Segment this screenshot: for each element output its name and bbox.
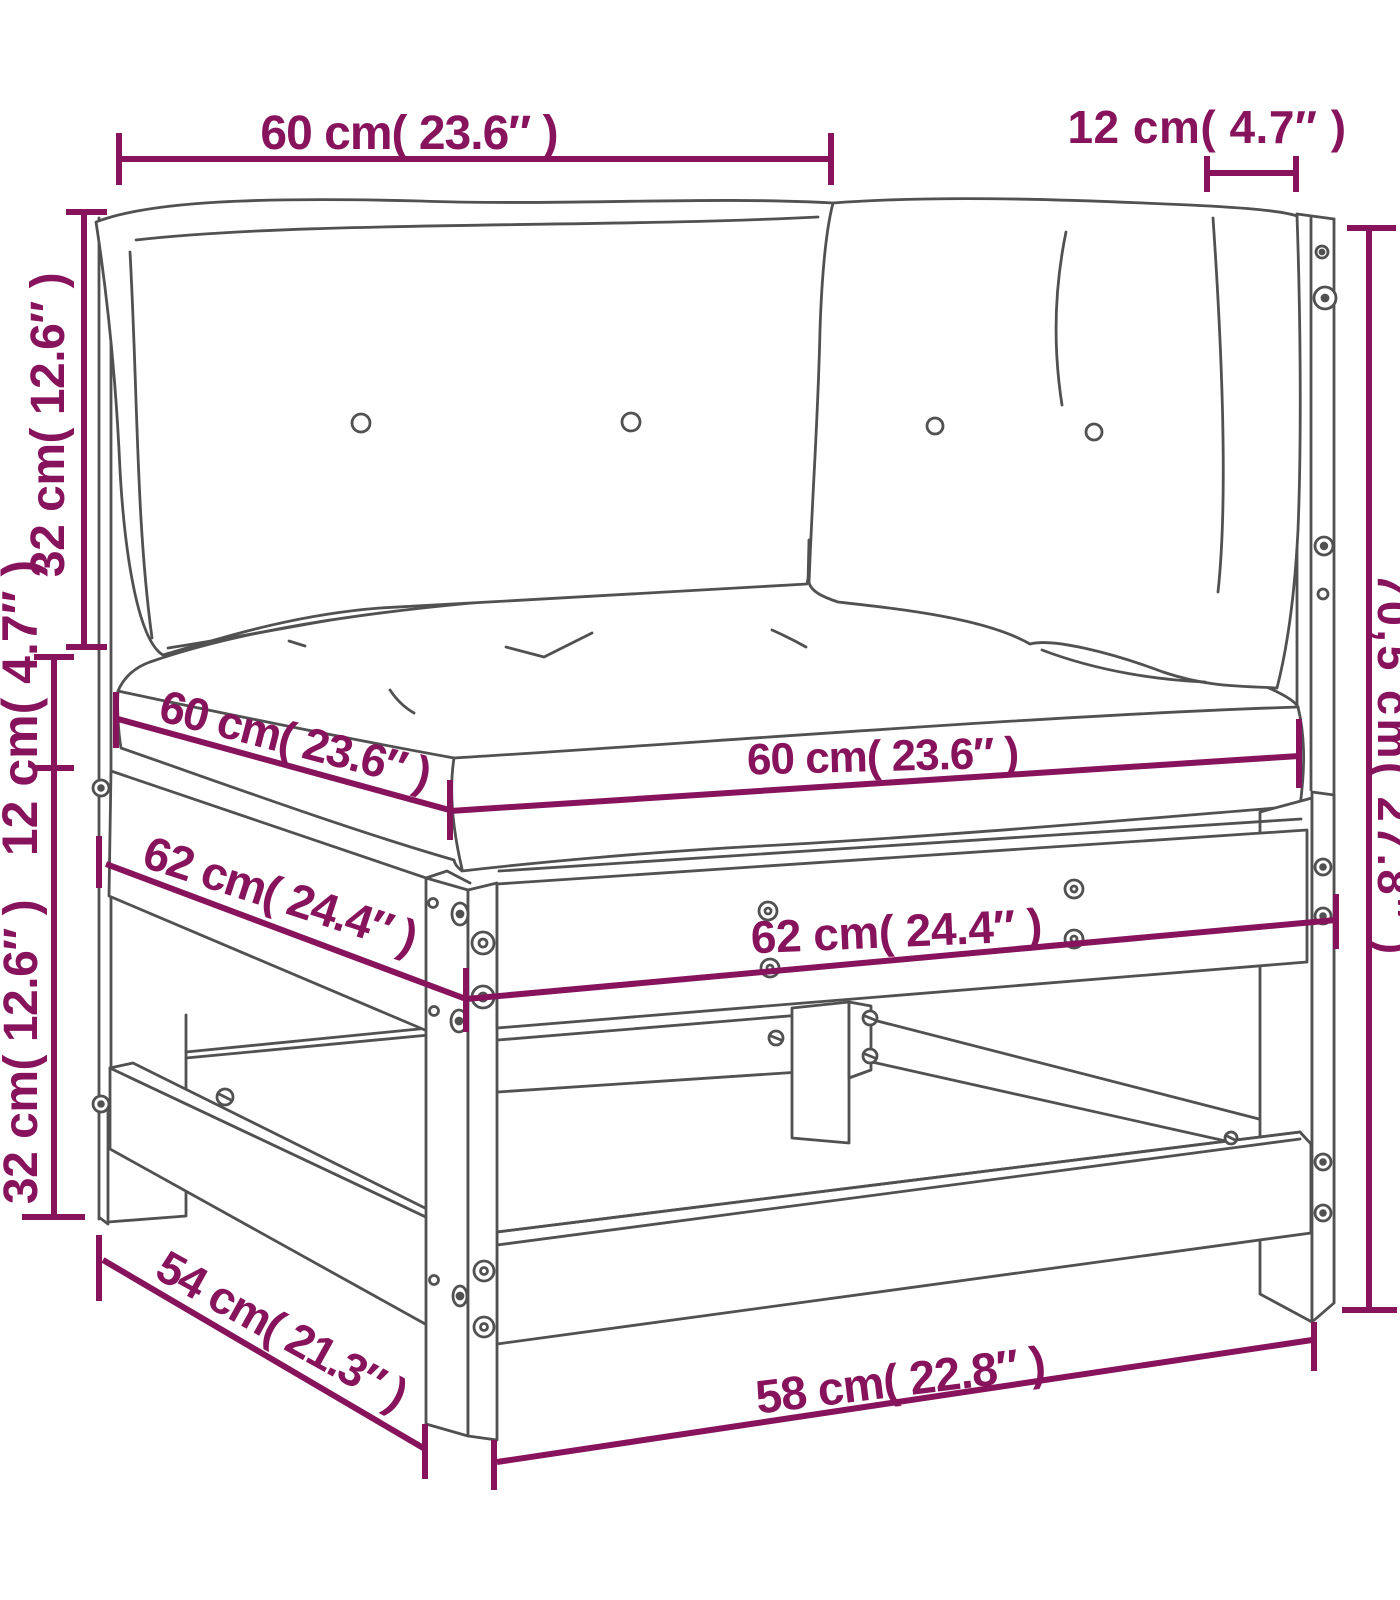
- svg-text:32 cm( 12.6″ ): 32 cm( 12.6″ ): [22, 273, 75, 577]
- svg-text:32 cm( 12.6″ ): 32 cm( 12.6″ ): [0, 900, 48, 1204]
- svg-text:12 cm( 4.7″ ): 12 cm( 4.7″ ): [1067, 101, 1346, 153]
- svg-text:70,5 cm( 27.8″ ): 70,5 cm( 27.8″ ): [1368, 572, 1400, 957]
- svg-text:12 cm( 4.7″ ): 12 cm( 4.7″ ): [0, 560, 48, 856]
- svg-text:60 cm( 23.6″ ): 60 cm( 23.6″ ): [746, 728, 1018, 784]
- svg-text:60 cm( 23.6″ ): 60 cm( 23.6″ ): [260, 107, 557, 160]
